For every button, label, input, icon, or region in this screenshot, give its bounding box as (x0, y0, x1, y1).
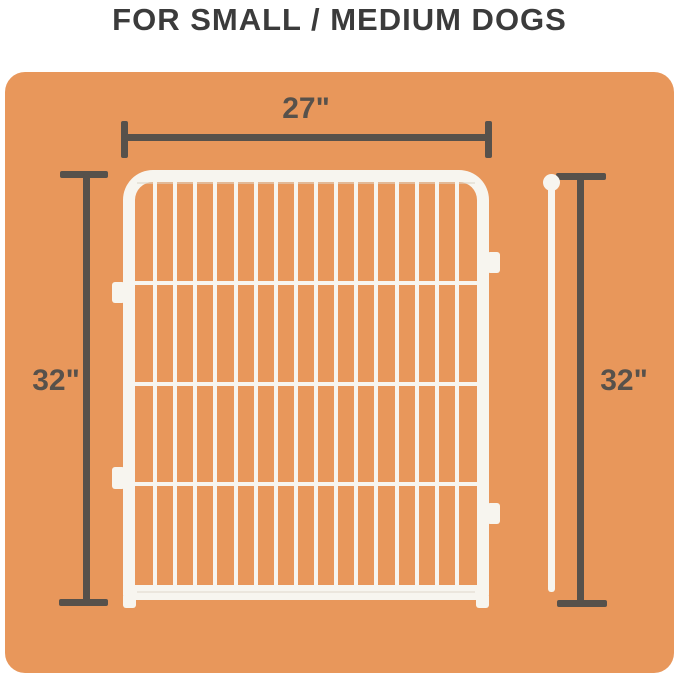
fence-right-foot (476, 596, 489, 608)
fence-bottom-seam (137, 591, 475, 593)
fence-bars (135, 182, 477, 585)
width-dimension-label: 27" (246, 94, 366, 124)
right-height-dimension-bottom-cap (557, 600, 607, 607)
fence-right-tab-upper (487, 252, 500, 273)
fence-crossbar (132, 281, 480, 285)
right-height-dimension-label: 32" (579, 366, 669, 396)
fence-left-foot (123, 596, 136, 608)
fence-crossbar (132, 382, 480, 386)
connector-pole (548, 183, 555, 592)
page-title: FOR SMALL / MEDIUM DOGS (0, 2, 679, 38)
left-height-dimension-label: 32" (16, 366, 96, 396)
fence-left-tab-lower (112, 467, 125, 489)
fence-left-tab-upper (112, 282, 125, 303)
width-dimension-line (125, 134, 488, 141)
fence-crossbar (132, 482, 480, 486)
fence-right-tab-lower (487, 503, 500, 524)
orange-background-card: 27" 32" 32" (5, 72, 674, 673)
infographic-stage: FOR SMALL / MEDIUM DOGS 27" 32" 32" (0, 0, 679, 682)
width-dimension-right-cap (485, 121, 492, 158)
left-height-dimension-bottom-cap (59, 599, 108, 606)
fence-panel (123, 170, 489, 608)
